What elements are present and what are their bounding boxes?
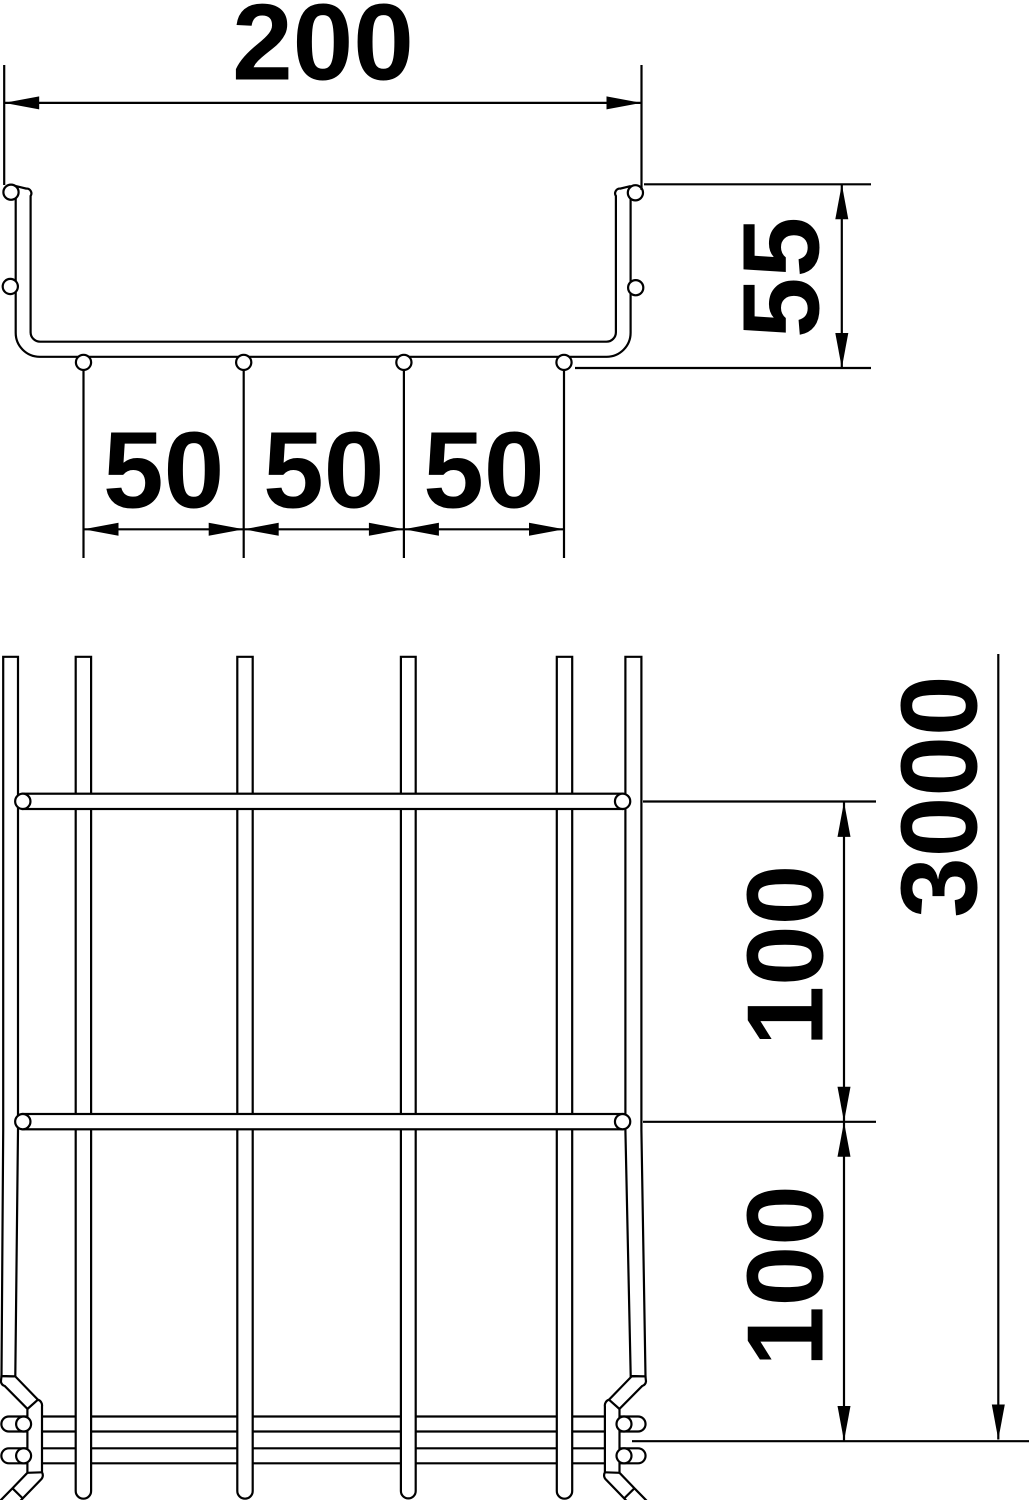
svg-text:55: 55 — [721, 217, 843, 338]
svg-text:3000: 3000 — [879, 675, 1001, 917]
svg-text:100: 100 — [725, 1185, 847, 1367]
svg-text:50: 50 — [263, 409, 384, 531]
svg-text:50: 50 — [423, 409, 544, 531]
svg-text:100: 100 — [725, 865, 847, 1047]
svg-text:50: 50 — [103, 409, 224, 531]
svg-text:200: 200 — [232, 0, 414, 104]
